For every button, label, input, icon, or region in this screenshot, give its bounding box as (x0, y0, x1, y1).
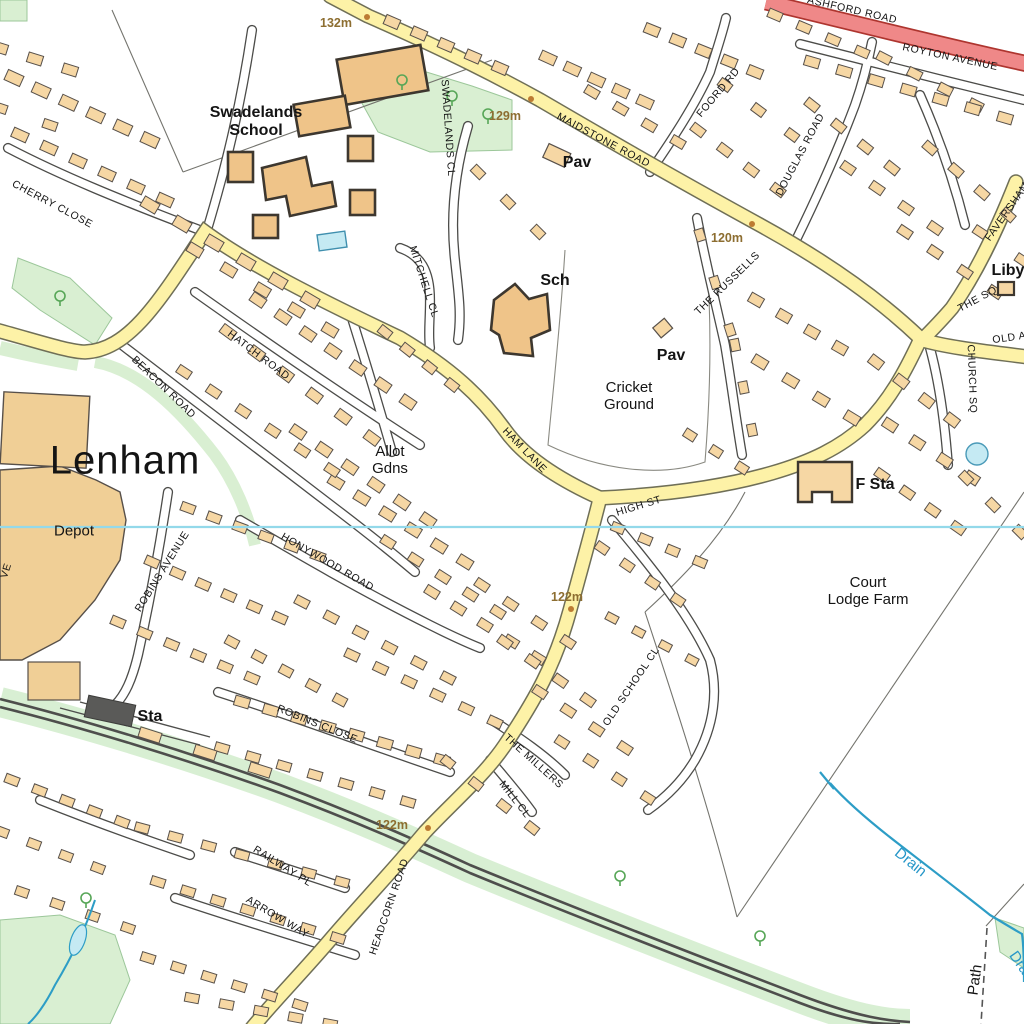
minor-road-layer (8, 18, 1024, 955)
map-viewport[interactable]: ASHFORD ROADROYTON AVENUEFOORD RDMAIDSTO… (0, 0, 1024, 1024)
liby-building (998, 282, 1014, 295)
school-pool (317, 231, 347, 251)
footpath (981, 928, 987, 1024)
map-canvas (0, 0, 1024, 1024)
pond (966, 443, 988, 465)
swadelands-school-buildings (228, 45, 428, 238)
sch-building (491, 284, 550, 356)
f-sta-building (798, 462, 852, 502)
drain-stream (830, 783, 1024, 982)
railway-layer (0, 699, 910, 1024)
depot-building (0, 466, 126, 660)
